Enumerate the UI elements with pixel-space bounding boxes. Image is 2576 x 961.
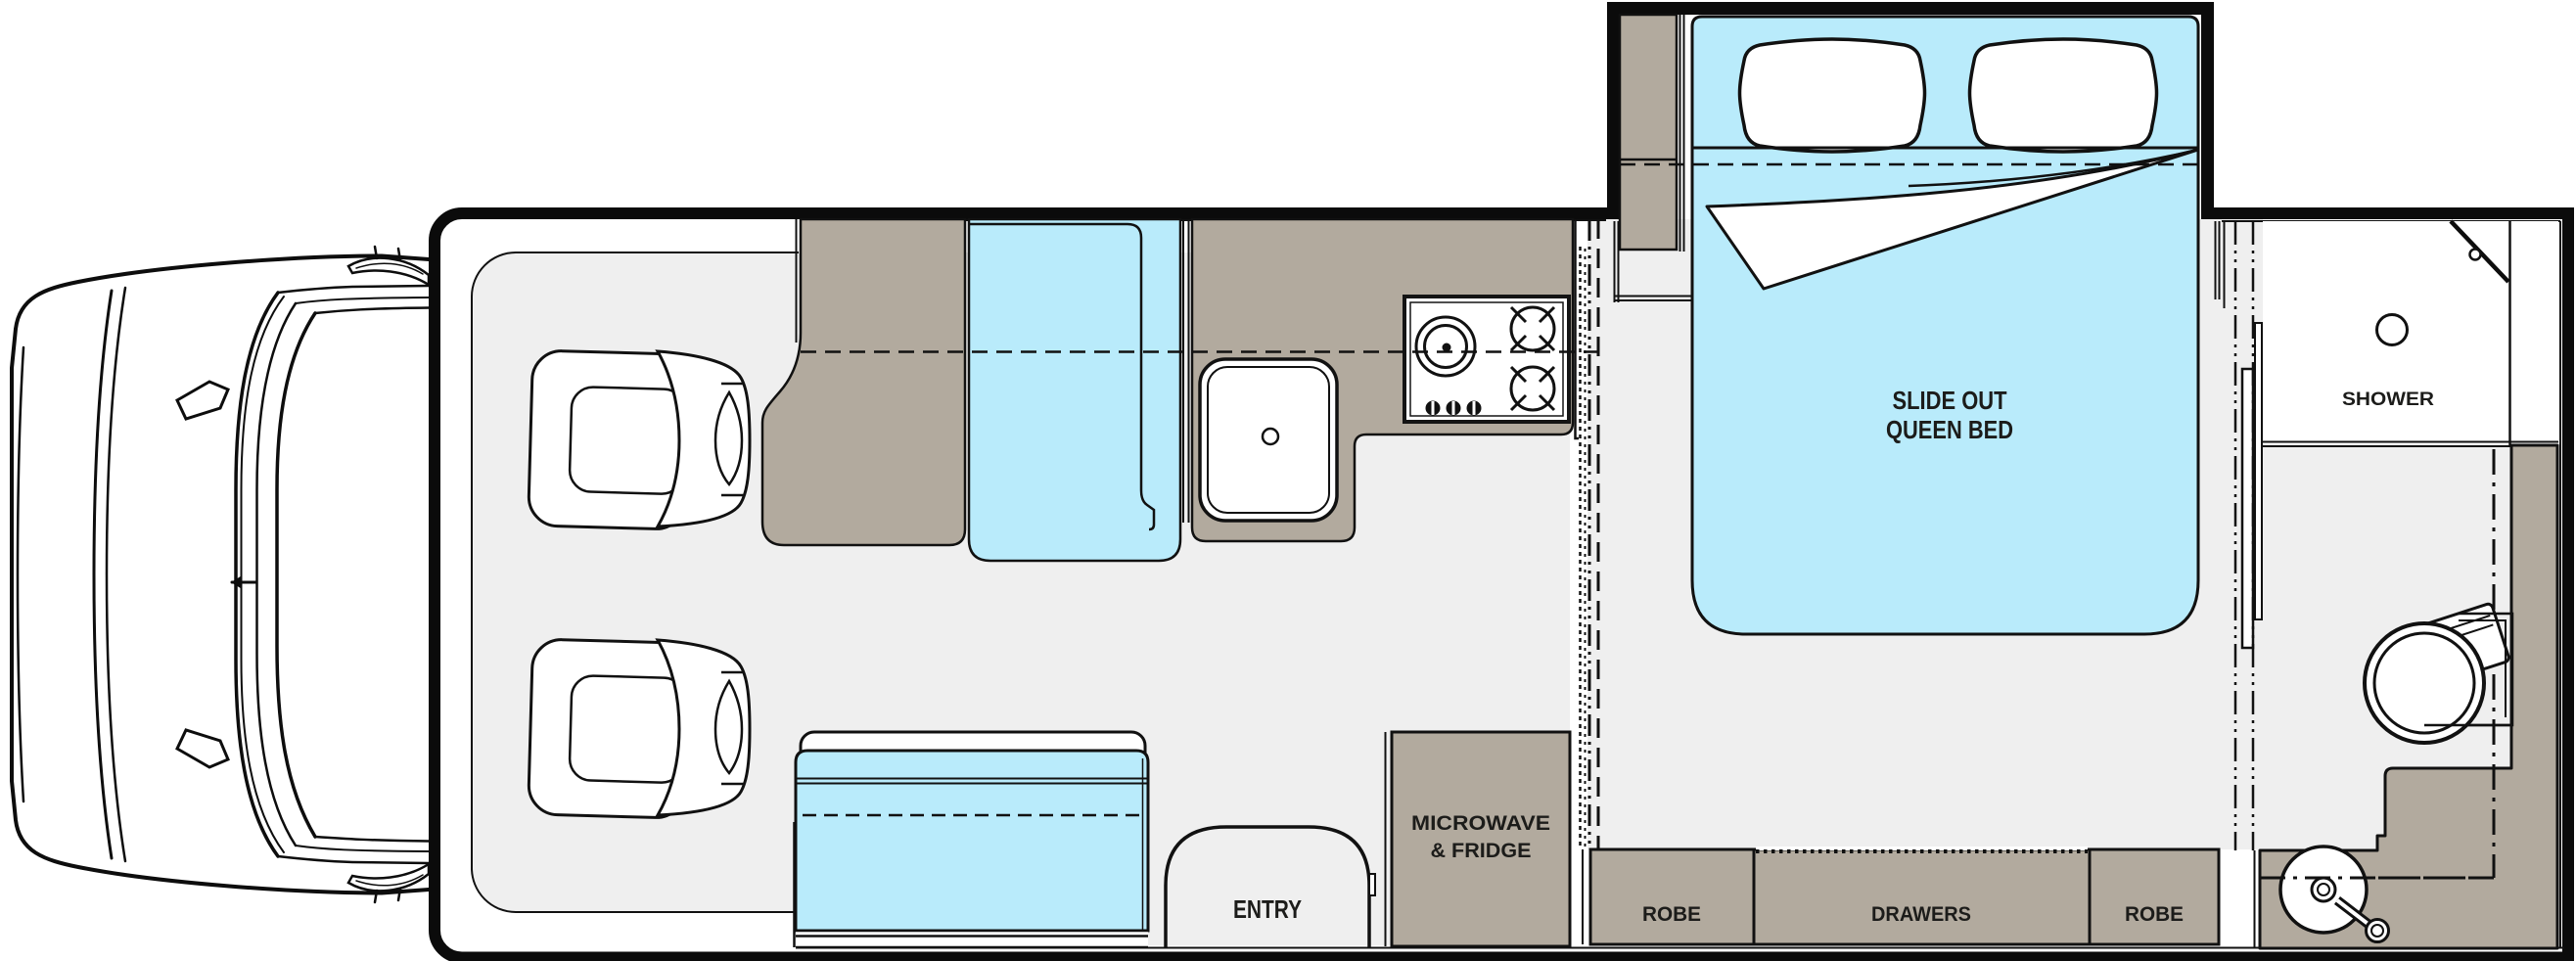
svg-text:ENTRY: ENTRY	[1233, 894, 1302, 924]
svg-text:DRAWERS: DRAWERS	[1871, 902, 1971, 926]
svg-text:& FRIDGE: & FRIDGE	[1431, 839, 1532, 862]
svg-text:MICROWAVE: MICROWAVE	[1411, 811, 1550, 835]
svg-text:ROBE: ROBE	[1642, 902, 1701, 926]
svg-text:SLIDE OUT: SLIDE OUT	[1893, 386, 2007, 415]
svg-text:QUEEN BED: QUEEN BED	[1886, 415, 2013, 444]
svg-text:SHOWER: SHOWER	[2342, 389, 2434, 410]
svg-text:ROBE: ROBE	[2125, 902, 2184, 926]
